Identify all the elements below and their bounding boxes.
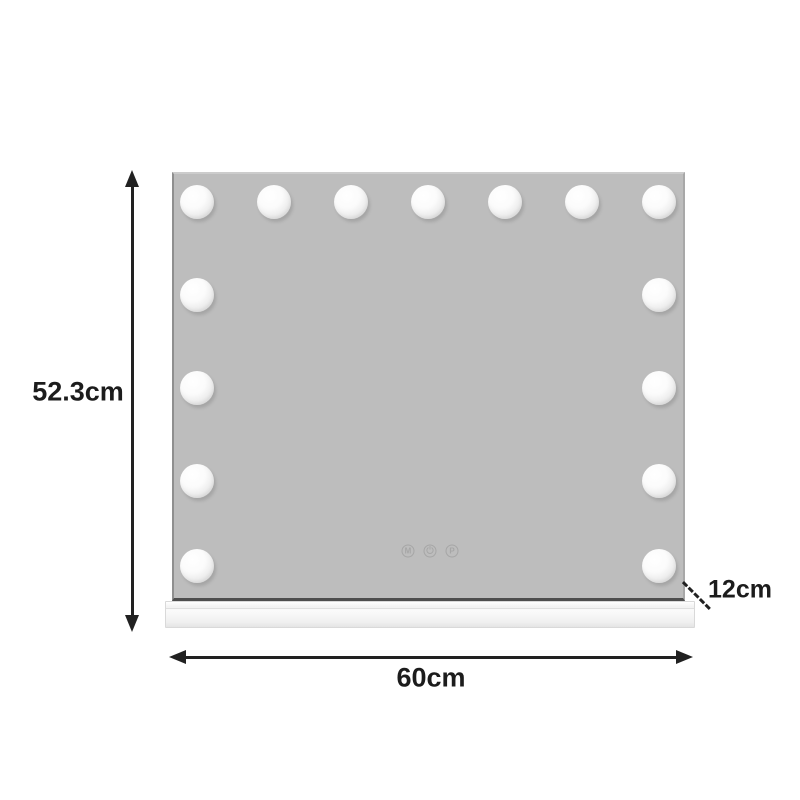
mirror-base xyxy=(165,601,695,628)
arrow-right-icon xyxy=(676,650,693,664)
height-dimension-line xyxy=(131,186,134,616)
arrow-up-icon xyxy=(125,170,139,187)
light-bulb xyxy=(488,185,522,219)
light-bulb xyxy=(180,278,214,312)
light-bulb xyxy=(642,278,676,312)
width-dimension-label: 60cm xyxy=(396,663,465,694)
light-bulb xyxy=(565,185,599,219)
light-bulb xyxy=(257,185,291,219)
light-bulb xyxy=(411,185,445,219)
light-bulb xyxy=(642,464,676,498)
arrow-left-icon xyxy=(169,650,186,664)
vanity-mirror-diagram: M P 52.3cm 60cm 12cm xyxy=(0,0,800,800)
light-bulb xyxy=(180,371,214,405)
depth-dimension-label: 12cm xyxy=(708,576,772,605)
light-bulb xyxy=(180,185,214,219)
touch-control-memory[interactable]: M xyxy=(402,545,415,558)
light-bulb xyxy=(642,371,676,405)
width-dimension-line xyxy=(185,656,677,659)
program-label: P xyxy=(449,547,454,555)
light-bulb xyxy=(180,464,214,498)
touch-control-program[interactable]: P xyxy=(446,545,459,558)
power-icon xyxy=(426,546,435,557)
light-bulb xyxy=(334,185,368,219)
arrow-down-icon xyxy=(125,615,139,632)
memory-label: M xyxy=(405,547,412,555)
touch-control-power[interactable] xyxy=(424,545,437,558)
light-bulb xyxy=(642,549,676,583)
height-dimension-label: 52.3cm xyxy=(32,377,124,408)
light-bulb xyxy=(642,185,676,219)
mirror-panel xyxy=(172,172,685,601)
light-bulb xyxy=(180,549,214,583)
